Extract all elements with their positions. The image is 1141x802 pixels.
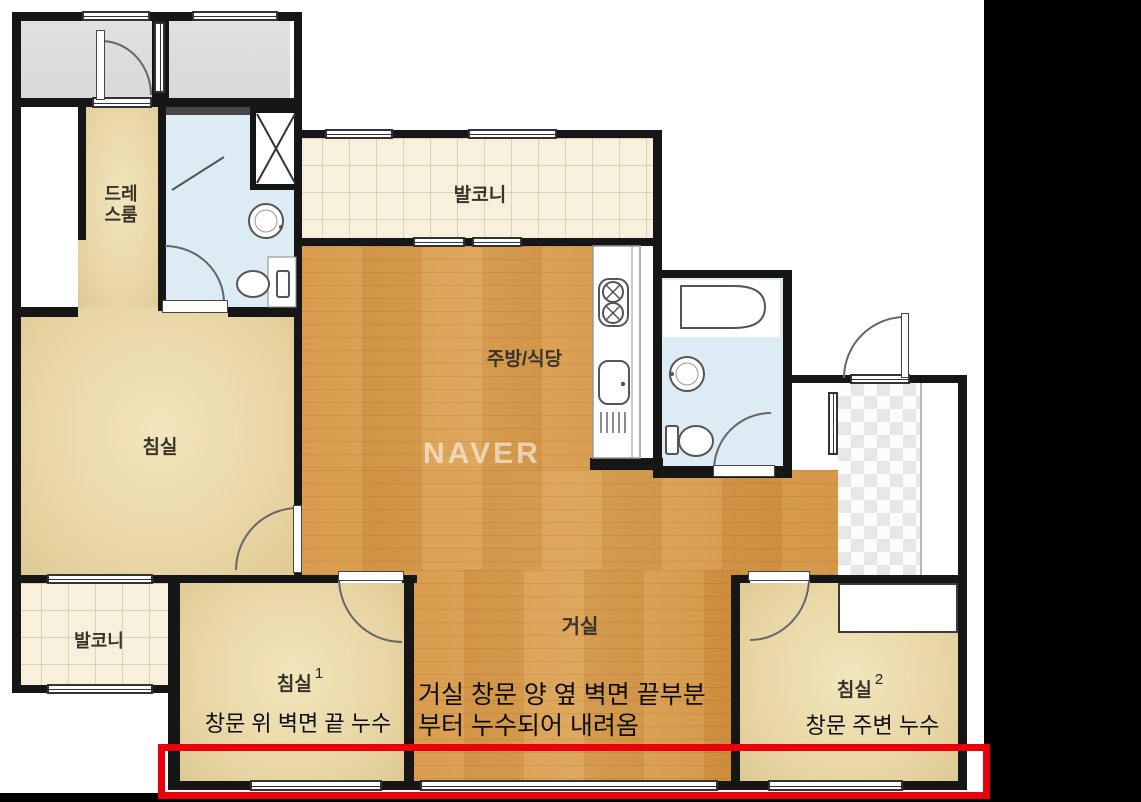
bedroom-2-label: 침실2	[800, 671, 920, 702]
entry-hall	[838, 383, 922, 577]
kitchen-counter-gap	[640, 246, 653, 458]
balcony-bottom-label: 발코니	[47, 627, 151, 653]
bedroom-2-number: 2	[875, 671, 883, 688]
floor-plan: 드레 스룸 발코니 주방/식당 침실 발코니 거실 침실1 침실2 NAVER …	[0, 0, 1141, 802]
bathroom-1-lintel	[163, 107, 250, 115]
bedroom-left-label: 침실	[110, 432, 210, 459]
wall	[294, 573, 302, 583]
living-leak-note-line1: 거실 창문 양 옆 벽면 끝부분	[418, 680, 758, 711]
wall	[810, 575, 967, 583]
living-leak-note-line2: 부터 누수되어 내려옴	[418, 711, 758, 742]
door-leaf	[162, 300, 228, 313]
balcony-top-label: 발코니	[425, 180, 535, 207]
wall	[393, 130, 468, 138]
kitchen-label: 주방/식당	[452, 344, 597, 371]
window	[192, 11, 278, 21]
wall	[228, 307, 302, 317]
wall	[557, 130, 662, 138]
bedroom-1-label: 침실1	[240, 665, 360, 696]
window	[47, 684, 153, 694]
window	[154, 22, 165, 93]
wall	[294, 12, 302, 507]
window	[468, 129, 557, 139]
wall	[653, 130, 662, 478]
wall	[295, 238, 413, 246]
wall	[653, 270, 792, 278]
bedroom-1-label-text: 침실	[277, 674, 312, 695]
bedroom-2-label-text: 침실	[837, 680, 872, 701]
bedroom-1-number: 1	[315, 665, 323, 682]
wall	[152, 98, 302, 107]
entry-divider-line	[920, 383, 922, 575]
window	[413, 237, 465, 247]
right-black-panel	[984, 0, 1141, 802]
dress-room-label: 드레 스룸	[84, 184, 158, 226]
room-gray-right	[168, 20, 290, 107]
naver-watermark: NAVER	[423, 437, 541, 471]
wall	[12, 307, 78, 317]
door-leaf	[293, 505, 302, 573]
shoe-closet	[828, 392, 838, 455]
door-leaf	[748, 571, 810, 581]
bathroom-1-floor-b	[250, 190, 294, 307]
wall	[12, 98, 92, 107]
bedroom-1-leak-note: 창문 위 벽면 끝 누수	[178, 706, 418, 738]
wall	[522, 238, 662, 246]
door-leaf	[96, 30, 105, 100]
living-floor-mid	[302, 470, 838, 577]
wall	[783, 375, 850, 383]
entry-door-leaf	[901, 313, 909, 378]
dress-room-label-line1: 드레	[84, 184, 158, 205]
wall	[958, 375, 967, 790]
door-leaf	[713, 465, 775, 477]
living-room-label: 거실	[530, 610, 630, 639]
window	[47, 574, 153, 584]
living-leak-note: 거실 창문 양 옆 벽면 끝부분 부터 누수되어 내려옴	[418, 680, 758, 742]
wall	[170, 575, 338, 583]
window	[472, 237, 522, 247]
dress-room-label-line2: 스룸	[84, 205, 158, 226]
bedroom-2-leak-note: 창문 주변 누수	[790, 708, 955, 740]
leak-highlight-box	[158, 744, 990, 799]
wall	[12, 12, 21, 693]
door-leaf	[338, 571, 404, 581]
wall	[465, 238, 472, 246]
bedroom-2-closet	[838, 583, 958, 633]
window	[325, 129, 393, 139]
wall	[783, 270, 792, 478]
window	[82, 11, 150, 21]
entry-door-arc	[843, 316, 905, 378]
